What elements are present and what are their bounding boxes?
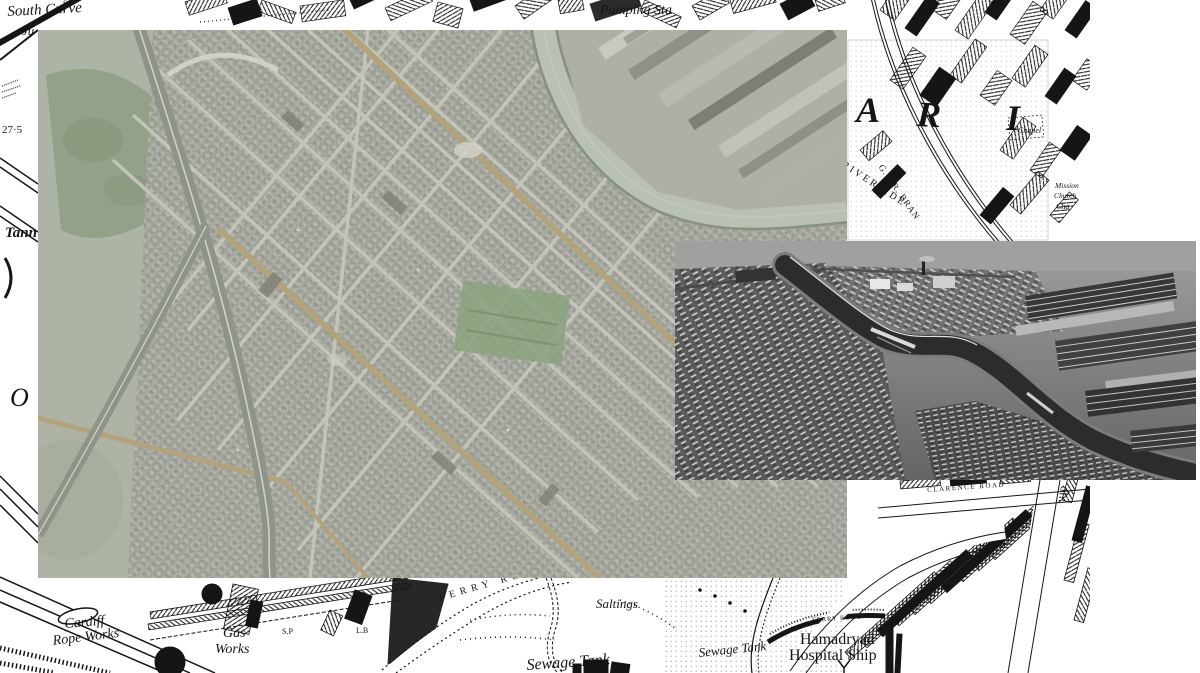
oblique-aerial-photo-drawing	[675, 241, 1196, 480]
label-works: Works	[215, 643, 250, 657]
label-saltings: Saltings	[596, 597, 638, 610]
label-chapel: Chapel	[1018, 127, 1041, 135]
label-mission: Mission	[1055, 182, 1079, 190]
label-chapel-partial: Cha	[1056, 203, 1069, 211]
label-benchmark: 27·5	[2, 125, 22, 136]
label-sp-top: S.P	[63, 0, 74, 8]
oblique-aerial-photo	[675, 241, 1196, 480]
label-church: Church	[1054, 192, 1076, 200]
label-hamadryad-line1: Hamadryad	[800, 632, 875, 648]
label-gas: Gas	[223, 627, 246, 641]
label-letter-r: R	[916, 96, 942, 133]
map-photo-collage: South Curve Ju S.P 27·5 Tann O Pumping S…	[0, 0, 1200, 673]
label-sp-bottom: S.P	[282, 628, 293, 636]
label-pumping-station: Pumping Sta	[600, 4, 672, 18]
label-letter-a: A	[856, 92, 880, 128]
label-tannery: Tann	[5, 226, 37, 241]
photo-sports-field	[454, 281, 571, 365]
label-lb-bottom: L.B	[356, 627, 368, 635]
label-junction: Ju	[22, 24, 34, 37]
label-o-large: O	[10, 385, 29, 411]
label-hamadryad-line2: Hospital Ship	[789, 648, 877, 664]
